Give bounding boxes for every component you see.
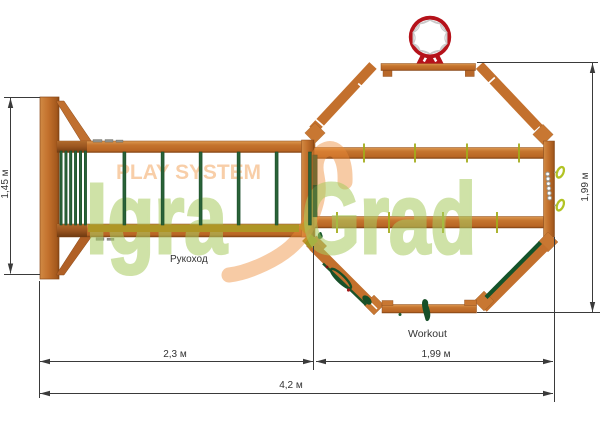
svg-text:2,3 м: 2,3 м	[163, 349, 187, 360]
svg-text:1,45 м: 1,45 м	[0, 169, 11, 198]
svg-text:Рукоход: Рукоход	[170, 254, 208, 265]
svg-text:4,2 м: 4,2 м	[279, 380, 303, 391]
svg-text:1,99 м: 1,99 м	[421, 349, 450, 360]
svg-text:Workout: Workout	[408, 328, 447, 340]
svg-text:Grad: Grad	[302, 163, 476, 275]
svg-text:1,99 м: 1,99 м	[580, 172, 591, 201]
